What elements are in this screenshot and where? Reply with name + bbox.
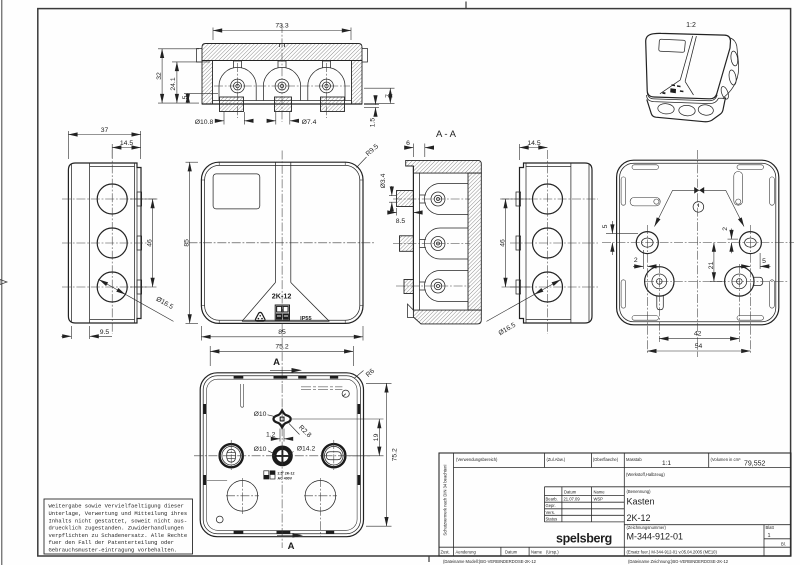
svg-text:1:2: 1:2 xyxy=(686,22,696,29)
svg-text:Ø10: Ø10 xyxy=(254,411,267,418)
svg-text:37: 37 xyxy=(101,127,109,134)
svg-text:Datum: Datum xyxy=(564,489,577,494)
svg-text:46: 46 xyxy=(147,239,154,247)
svg-text:5: 5 xyxy=(602,224,609,228)
svg-text:(Oberflaeche): (Oberflaeche) xyxy=(593,457,619,462)
svg-text:Aenderung: Aenderung xyxy=(456,549,477,554)
svg-text:8.5: 8.5 xyxy=(396,218,406,225)
svg-text:79,552: 79,552 xyxy=(744,461,766,468)
svg-text:2: 2 xyxy=(722,227,729,231)
svg-text:Bl.: Bl. xyxy=(781,542,786,547)
svg-text:Masstab: Masstab xyxy=(626,457,642,462)
svg-text:Vers.: Vers. xyxy=(546,510,555,515)
svg-text:AC 400V: AC 400V xyxy=(278,476,293,480)
svg-text:5: 5 xyxy=(762,258,766,265)
svg-text:46: 46 xyxy=(500,239,507,247)
svg-text:Weitergabe sowie Vervielfaelti: Weitergabe sowie Vervielfaeltigung diese… xyxy=(49,503,184,510)
svg-text:(Dateiname Zeichnung:)BG-VERBI: (Dateiname Zeichnung:)BG-VERBINDERDOSE-2… xyxy=(628,559,729,564)
svg-text:Gebrauchsmuster-eintragung vor: Gebrauchsmuster-eintragung vorbehalten. xyxy=(49,547,178,554)
svg-text:(Zeichnungsnummer): (Zeichnungsnummer) xyxy=(627,525,667,530)
svg-text:verpflichten zu Schadenersatz.: verpflichten zu Schadenersatz. Alle Rech… xyxy=(49,532,188,539)
svg-text:73.3: 73.3 xyxy=(275,23,288,30)
svg-text:Inhalts nicht gestattet, sowei: Inhalts nicht gestattet, soweit nicht au… xyxy=(49,517,188,524)
svg-text:(Volumen in cm³: (Volumen in cm³ xyxy=(711,457,742,462)
svg-text:(Dateiname Modell:)BG-VERBINDE: (Dateiname Modell:)BG-VERBINDERDOSE-2K-1… xyxy=(443,559,537,564)
svg-text:1.2: 1.2 xyxy=(266,431,276,438)
svg-text:IP55: IP55 xyxy=(300,316,312,322)
svg-text:42: 42 xyxy=(694,331,702,338)
svg-text:Ø7.4: Ø7.4 xyxy=(302,119,317,126)
svg-text:Status: Status xyxy=(546,516,558,521)
svg-text:6: 6 xyxy=(406,140,410,147)
svg-text:19: 19 xyxy=(373,433,380,441)
svg-text:54: 54 xyxy=(695,343,703,350)
svg-text:Ø10: Ø10 xyxy=(254,446,267,453)
svg-text:Blatt: Blatt xyxy=(766,525,775,530)
svg-text:druecklich zugestanden. Zuwide: druecklich zugestanden. Zuwiderhandlunge… xyxy=(49,525,184,532)
svg-text:Schutzvermerk nach DIN 34 beac: Schutzvermerk nach DIN 34 beachten! xyxy=(443,464,448,535)
svg-text:75.2: 75.2 xyxy=(392,448,399,461)
svg-text:9.5: 9.5 xyxy=(100,329,110,336)
svg-text:fuer den Fall der Patenterteil: fuer den Fall der Patenterteilung oder xyxy=(49,539,174,546)
svg-text:1.5: 1.5 xyxy=(370,118,377,128)
svg-text:Datum: Datum xyxy=(505,549,518,554)
svg-text:A: A xyxy=(273,357,280,368)
svg-text:2.5² 2K-12: 2.5² 2K-12 xyxy=(278,472,295,476)
svg-text:14.5: 14.5 xyxy=(120,140,133,147)
svg-text:2: 2 xyxy=(634,257,638,264)
svg-text:Gepr.: Gepr. xyxy=(546,503,556,508)
svg-text:2K-12: 2K-12 xyxy=(627,513,651,523)
svg-text:(Verwendungsbereich): (Verwendungsbereich) xyxy=(456,457,498,462)
svg-text:Ø10.8: Ø10.8 xyxy=(195,119,214,126)
svg-text:5: 5 xyxy=(182,95,189,99)
svg-text:A - A: A - A xyxy=(436,129,457,140)
svg-text:(Benennung): (Benennung) xyxy=(627,489,652,494)
svg-text:(Ersatz fuer.) M-344-912-01 v: (Ersatz fuer.) M-344-912-01 v.05.04.2005… xyxy=(627,549,718,554)
svg-text:Ø14.2: Ø14.2 xyxy=(297,445,316,452)
svg-text:Name: Name xyxy=(594,489,606,494)
svg-text:(Ursp.): (Ursp.) xyxy=(546,549,559,554)
svg-text:21: 21 xyxy=(708,261,715,269)
svg-text:M-344-912-01: M-344-912-01 xyxy=(627,532,684,542)
svg-text:1: 1 xyxy=(768,533,771,539)
svg-text:85: 85 xyxy=(184,239,191,247)
svg-text:(Werkstoff,Halbzeug): (Werkstoff,Halbzeug) xyxy=(626,472,665,477)
svg-text:Ø3.4: Ø3.4 xyxy=(380,173,387,188)
svg-text:A: A xyxy=(288,541,295,552)
svg-text:1:1: 1:1 xyxy=(662,460,671,467)
svg-text:spelsberg: spelsberg xyxy=(556,532,612,546)
svg-text:2K-12: 2K-12 xyxy=(272,291,292,300)
svg-text:7: 7 xyxy=(385,94,392,98)
svg-text:21.07.09: 21.07.09 xyxy=(564,497,581,502)
svg-text:Name: Name xyxy=(531,549,543,554)
svg-text:24.1: 24.1 xyxy=(170,77,177,90)
svg-text:Kasten: Kasten xyxy=(627,497,655,507)
svg-text:32: 32 xyxy=(156,72,163,80)
svg-text:14.5: 14.5 xyxy=(527,140,540,147)
svg-text:Zust.: Zust. xyxy=(441,549,450,554)
svg-text:75.2: 75.2 xyxy=(275,344,288,351)
svg-text:Bearb.: Bearb. xyxy=(546,497,558,502)
svg-text:(Zul.Abw.): (Zul.Abw.) xyxy=(547,457,566,462)
svg-text:Unterlage, Verwertung und Mitt: Unterlage, Verwertung und Mitteilung ihr… xyxy=(49,510,188,517)
svg-text:85: 85 xyxy=(278,329,286,336)
svg-text:WSP: WSP xyxy=(594,497,604,502)
